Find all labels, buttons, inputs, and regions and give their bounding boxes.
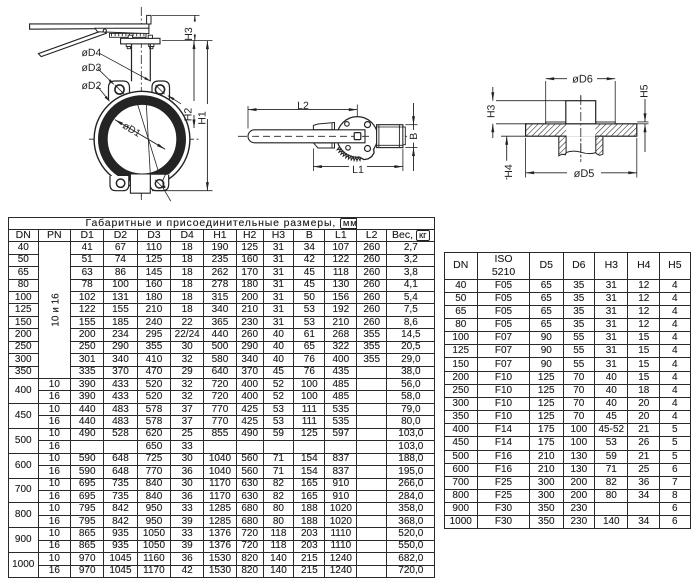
svg-text:H5: H5 (638, 84, 650, 98)
svg-text:øD2: øD2 (82, 80, 102, 92)
svg-text:B: B (408, 133, 420, 140)
svg-text:øD4: øD4 (82, 47, 102, 59)
svg-text:H1: H1 (196, 111, 208, 125)
svg-text:L2: L2 (297, 100, 309, 112)
svg-text:H4: H4 (503, 164, 515, 178)
svg-text:H3: H3 (183, 27, 195, 41)
svg-text:H3: H3 (486, 104, 498, 118)
svg-text:H2: H2 (183, 108, 195, 122)
svg-text:øD6: øD6 (572, 74, 593, 86)
svg-text:øD5: øD5 (574, 168, 595, 180)
svg-text:L1: L1 (352, 164, 364, 176)
svg-text:øD3: øD3 (82, 62, 102, 74)
